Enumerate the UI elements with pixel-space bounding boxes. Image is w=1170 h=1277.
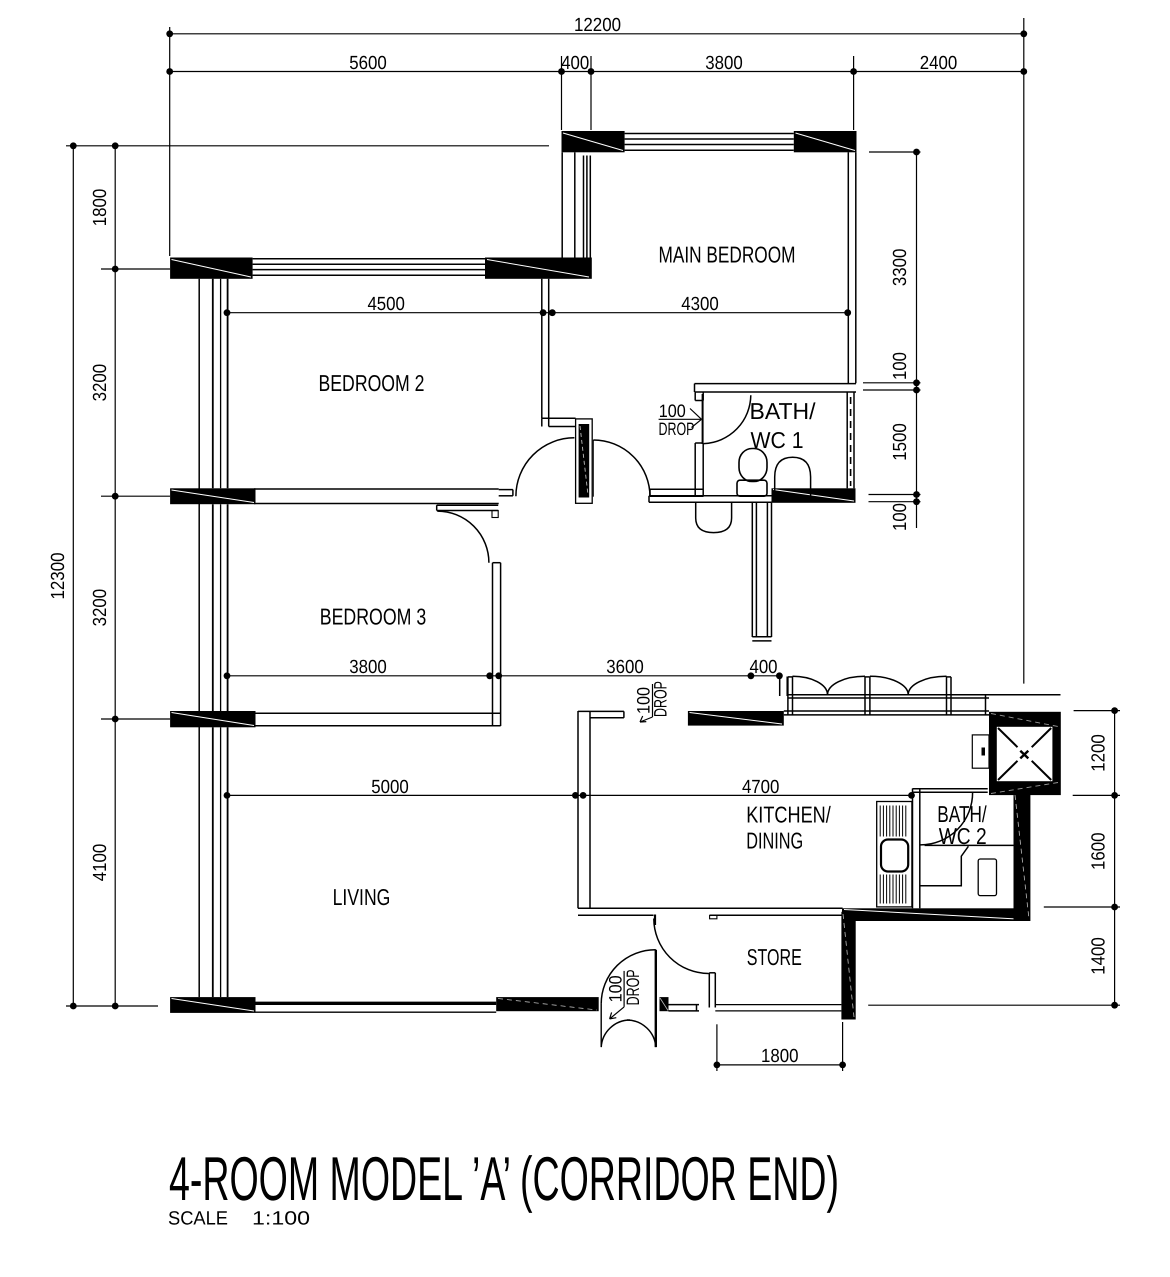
svg-text:BEDROOM 3: BEDROOM 3 <box>320 604 427 630</box>
svg-text:BATH/: BATH/ <box>750 398 817 424</box>
svg-text:1:100: 1:100 <box>252 1209 310 1230</box>
svg-text:MAIN BEDROOM: MAIN BEDROOM <box>659 242 796 268</box>
svg-text:2400: 2400 <box>920 53 958 74</box>
svg-text:KITCHEN/: KITCHEN/ <box>746 802 831 828</box>
svg-text:WC 1: WC 1 <box>751 427 804 453</box>
svg-text:3300: 3300 <box>890 249 911 287</box>
svg-text:DROP: DROP <box>623 969 643 1005</box>
svg-text:4700: 4700 <box>742 777 780 798</box>
svg-text:3800: 3800 <box>349 657 387 678</box>
svg-text:WC 2: WC 2 <box>939 823 987 849</box>
svg-text:5000: 5000 <box>371 777 409 798</box>
svg-text:5600: 5600 <box>349 53 387 74</box>
svg-text:1500: 1500 <box>890 423 911 461</box>
svg-text:DINING: DINING <box>746 828 803 854</box>
svg-text:1800: 1800 <box>90 189 111 227</box>
svg-text:4500: 4500 <box>367 294 405 315</box>
svg-text:100: 100 <box>890 352 911 380</box>
svg-text:4300: 4300 <box>681 294 719 315</box>
svg-text:3200: 3200 <box>90 364 111 402</box>
svg-text:4-ROOM MODEL ’A’ (CORRIDOR END: 4-ROOM MODEL ’A’ (CORRIDOR END) <box>169 1145 839 1214</box>
svg-text:3800: 3800 <box>705 53 743 74</box>
svg-text:100: 100 <box>890 503 911 531</box>
svg-text:LIVING: LIVING <box>333 884 391 910</box>
svg-text:STORE: STORE <box>747 944 802 970</box>
svg-text:1600: 1600 <box>1089 833 1110 871</box>
svg-text:400: 400 <box>750 657 778 678</box>
svg-text:SCALE: SCALE <box>168 1209 228 1230</box>
svg-text:4100: 4100 <box>90 844 111 882</box>
svg-text:3600: 3600 <box>606 657 644 678</box>
svg-text:DROP: DROP <box>659 419 695 439</box>
svg-text:12200: 12200 <box>574 15 621 36</box>
svg-text:400: 400 <box>561 53 589 74</box>
svg-text:BEDROOM 2: BEDROOM 2 <box>319 370 425 396</box>
svg-text:DROP: DROP <box>651 681 671 717</box>
svg-text:3200: 3200 <box>90 589 111 627</box>
svg-text:1800: 1800 <box>761 1046 799 1067</box>
svg-text:1400: 1400 <box>1089 937 1110 975</box>
svg-text:12300: 12300 <box>48 553 69 600</box>
svg-text:1200: 1200 <box>1089 734 1110 772</box>
